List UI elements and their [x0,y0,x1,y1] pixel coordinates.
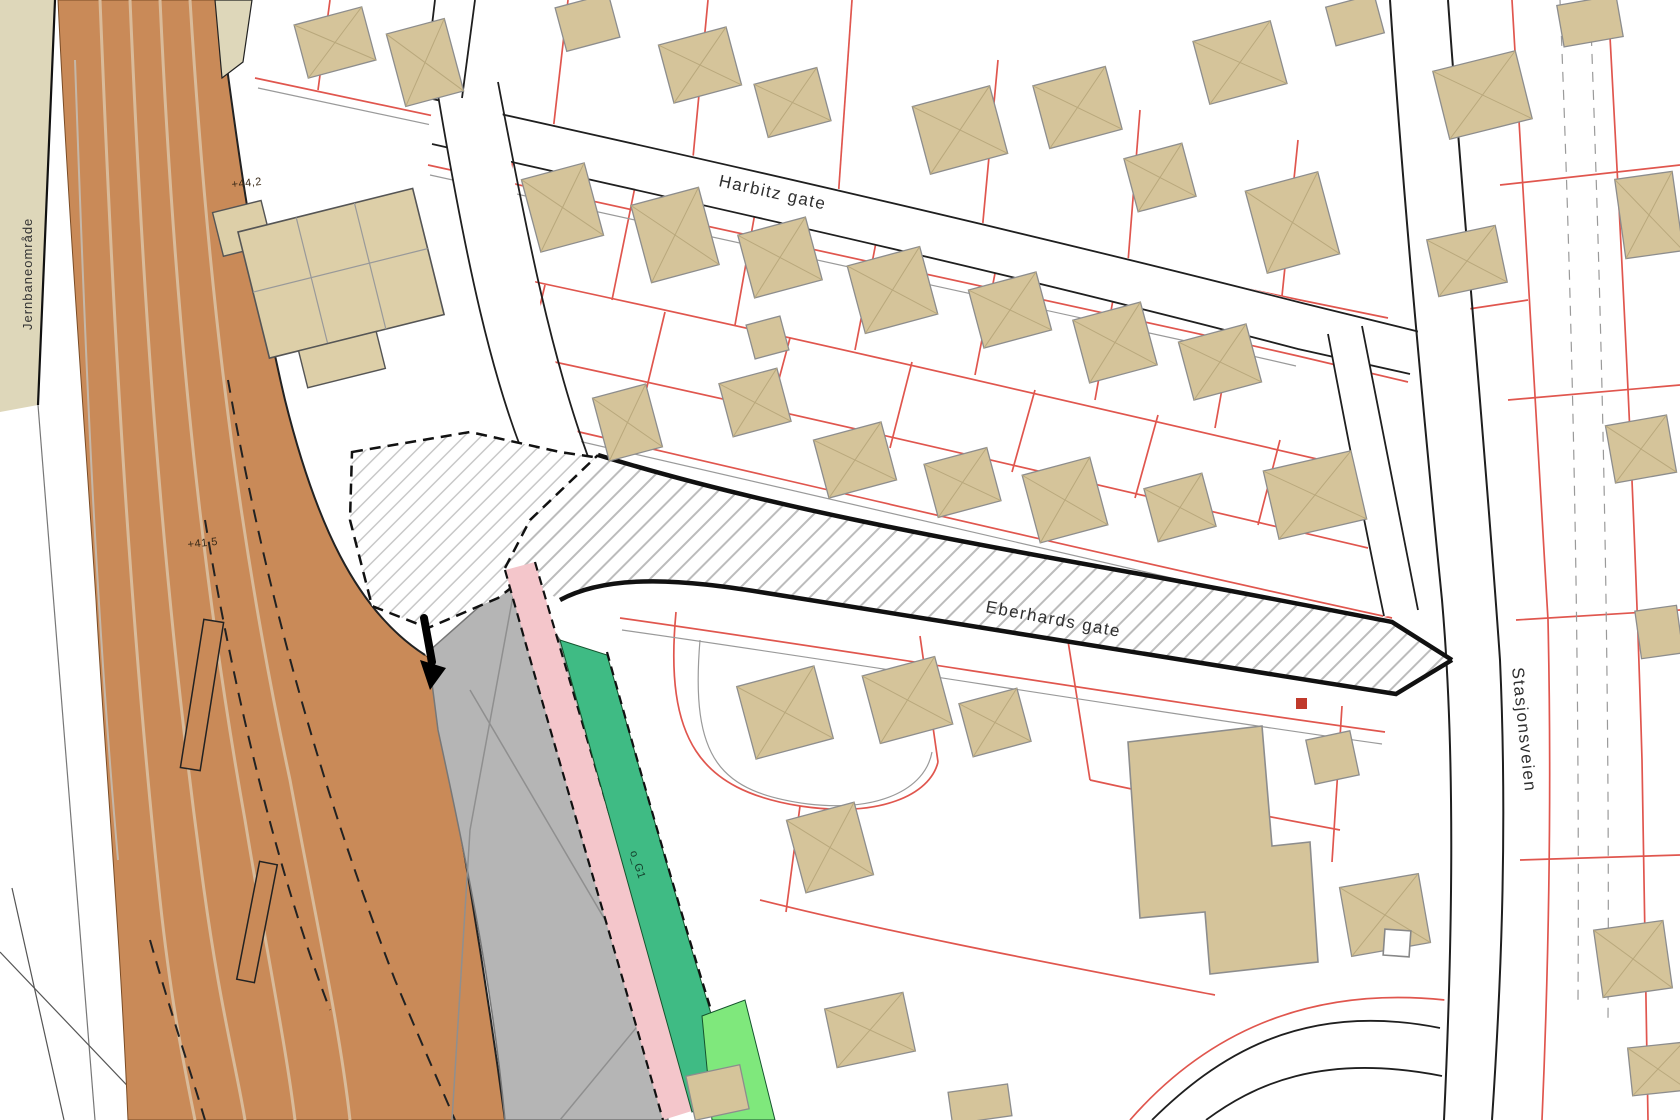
railway-area-label: Jernbaneområde [20,218,35,330]
building-footprint [1628,1042,1680,1096]
zoning-map-canvas[interactable]: Harbitz gate Eberhards gate Stasjonsveie… [0,0,1680,1120]
building-footprint [1306,731,1359,784]
utility-marker [1296,698,1307,709]
building-footprint [1615,171,1680,258]
building-footprint [1605,415,1676,483]
building-footprint [1594,920,1673,997]
building-footprint [1635,605,1680,658]
small-structure-outline [1383,929,1411,957]
map-svg: Harbitz gate Eberhards gate Stasjonsveie… [0,0,1680,1120]
